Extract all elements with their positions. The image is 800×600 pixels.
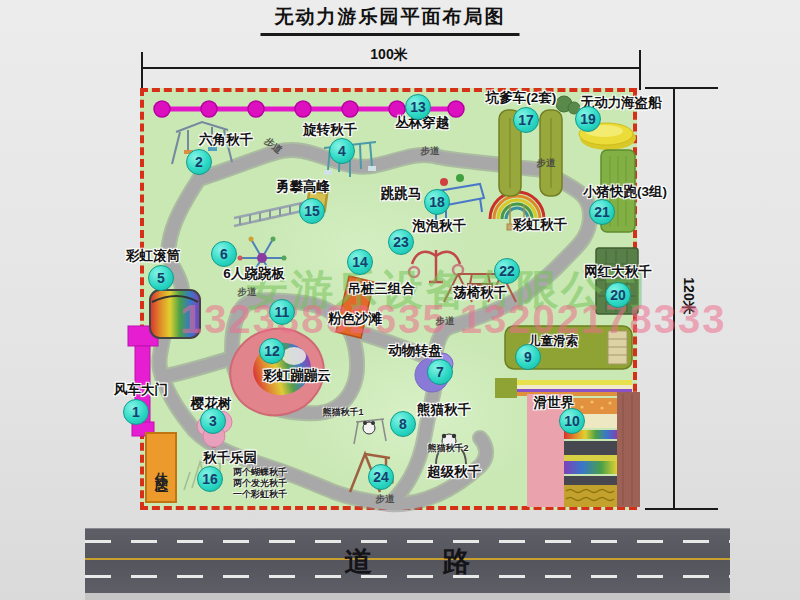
attraction-badge-23: 23 xyxy=(388,229,414,255)
attraction-badge-9: 9 xyxy=(515,344,541,370)
attraction-label-23: 泡泡秋千 xyxy=(412,217,466,235)
walkway-label: 步道 xyxy=(436,315,455,328)
walkway-label: 步道 xyxy=(376,493,395,506)
page-title: 无动力游乐园平面布局图 xyxy=(261,4,520,36)
attraction-badge-17: 17 xyxy=(513,107,539,133)
panda-swing-2-label: 熊猫秋千2 xyxy=(427,442,468,455)
top-dimension-line xyxy=(142,67,640,69)
attraction-label-4: 旋转秋千 xyxy=(303,121,357,139)
walkway-label: 步道 xyxy=(421,145,440,158)
attraction-label-15: 勇攀高峰 xyxy=(276,178,330,196)
rest-area-label: 休憩区 xyxy=(152,462,170,474)
attraction-badge-11: 11 xyxy=(269,299,295,325)
attraction-badge-18: 18 xyxy=(424,189,450,215)
attraction-label-12: 彩虹蹦蹦云 xyxy=(263,367,331,385)
walkway-label: 步道 xyxy=(238,286,257,299)
attraction-badge-14: 14 xyxy=(347,249,373,275)
attraction-badge-7: 7 xyxy=(427,359,453,385)
attraction-label-20: 网红大秋千 xyxy=(584,263,652,281)
attraction-badge-10: 10 xyxy=(559,408,585,434)
attraction-badge-4: 4 xyxy=(329,138,355,164)
right-dimension-top-tick xyxy=(645,87,718,89)
panda-swing-1-label: 熊猫秋千1 xyxy=(322,406,363,419)
attraction-label-11: 粉色沙滩 xyxy=(328,310,382,328)
top-dimension-right-tick xyxy=(639,50,641,90)
attraction-label-17: 坑爹车(2套) xyxy=(486,89,557,107)
attraction-label-21: 小猪快跑(3组) xyxy=(583,183,667,201)
attraction-label-22: 荡椅秋千 xyxy=(453,284,507,302)
attraction-badge-24: 24 xyxy=(368,464,394,490)
attraction-label-7: 动物转盘 xyxy=(388,342,442,360)
road: 道路 xyxy=(85,528,730,594)
swing-park-note-3: 一个彩虹秋千 xyxy=(233,488,287,501)
rainbow-swing-label: 彩虹秋千 xyxy=(513,216,567,234)
attraction-badge-20: 20 xyxy=(605,282,631,308)
attraction-label-24: 超级秋千 xyxy=(427,463,481,481)
attraction-label-8: 熊猫秋千 xyxy=(417,401,471,419)
right-dimension-bottom-tick xyxy=(645,508,718,510)
attraction-badge-6: 6 xyxy=(211,241,237,267)
attraction-badge-13: 13 xyxy=(405,94,431,120)
road-shoulder xyxy=(85,593,730,600)
attraction-badge-22: 22 xyxy=(494,258,520,284)
attraction-badge-21: 21 xyxy=(589,199,615,225)
attraction-label-16: 秋千乐园 xyxy=(203,449,257,467)
attraction-label-5: 彩虹滚筒 xyxy=(126,247,180,265)
attraction-badge-1: 1 xyxy=(123,399,149,425)
attraction-label-14: 吊桩三组合 xyxy=(347,280,415,298)
rest-area: 休憩区 xyxy=(145,432,177,503)
attraction-badge-15: 15 xyxy=(299,198,325,224)
attraction-badge-16: 16 xyxy=(197,466,223,492)
attraction-badge-3: 3 xyxy=(200,408,226,434)
attraction-label-2: 六角秋千 xyxy=(199,131,253,149)
attraction-badge-8: 8 xyxy=(390,411,416,437)
attraction-label-1: 风车大门 xyxy=(114,381,168,399)
attraction-badge-5: 5 xyxy=(148,265,174,291)
width-dimension-label: 100米 xyxy=(370,46,407,64)
road-label: 道路 xyxy=(345,543,541,581)
attraction-label-6: 6人跷跷板 xyxy=(223,265,285,283)
attraction-badge-19: 19 xyxy=(575,106,601,132)
walkway-label: 步道 xyxy=(537,157,556,170)
screenshot-root: 无动力游乐园平面布局图 100米 120米 xyxy=(0,0,800,600)
attraction-badge-2: 2 xyxy=(186,149,212,175)
attraction-badge-12: 12 xyxy=(259,338,285,364)
attraction-label-18: 跳跳马 xyxy=(381,185,422,203)
